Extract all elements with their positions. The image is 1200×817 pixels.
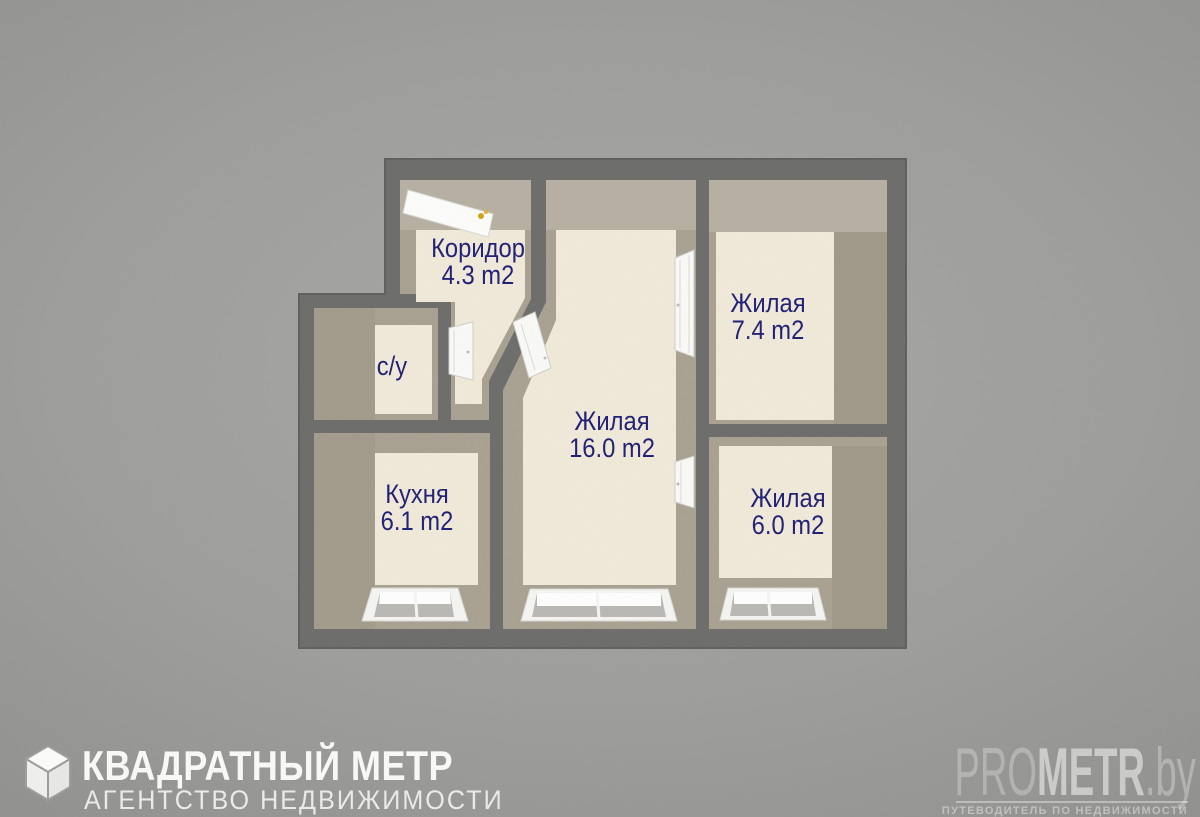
room-name: Жилая [682, 485, 893, 512]
agency-type: АГЕНТСТВО НЕДВИЖИМОСТИ [84, 786, 504, 814]
watermark-tagline: ПУТЕВОДИТЕЛЬ ПО НЕДВИЖИМОСТИ [942, 805, 1188, 817]
entrance-door-handle [478, 213, 484, 219]
room-area: 6.1 m2 [311, 508, 522, 535]
watermark-site-name: PROMETR.by [955, 738, 1196, 806]
watermark-metr: METR [1037, 734, 1145, 810]
watermark-block: PROMETR.by ПУТЕВОДИТЕЛЬ ПО НЕДВИЖИМОСТИ [950, 746, 1198, 817]
watermark-divider [956, 801, 1188, 803]
room-name: с/у [286, 353, 497, 380]
living16-window [521, 589, 677, 621]
room-area: 7.4 m2 [662, 317, 873, 344]
room-label-bathroom: с/у [286, 353, 497, 380]
agency-name: КВАДРАТНЫЙ МЕТР [82, 745, 453, 787]
room-label-corridor: Коридор 4.3 m2 [372, 235, 583, 289]
watermark-domain: .by [1145, 734, 1196, 810]
floorplan-image: Коридор 4.3 m2 Жилая 16.0 m2 Жилая 7.4 m… [0, 0, 1200, 817]
room-walls-living16-top-light [546, 180, 696, 230]
room-walls-living74-top-light [709, 180, 887, 232]
room-name: Коридор [372, 235, 583, 262]
room-label-living-6-0: Жилая 6.0 m2 [682, 485, 893, 539]
room-name: Жилая [662, 290, 873, 317]
room-area: 4.3 m2 [372, 262, 583, 289]
room-label-living-16: Жилая 16.0 m2 [506, 408, 717, 462]
room-area: 16.0 m2 [506, 435, 717, 462]
watermark-pro: PRO [955, 734, 1038, 810]
room-label-living-7-4: Жилая 7.4 m2 [662, 290, 873, 344]
room-label-kitchen: Кухня 6.1 m2 [311, 481, 522, 535]
agency-logo-block: КВАДРАТНЫЙ МЕТР АГЕНТСТВО НЕДВИЖИМОСТИ [0, 744, 560, 817]
living60-window [720, 588, 826, 620]
room-area: 6.0 m2 [682, 512, 893, 539]
room-name: Кухня [311, 481, 522, 508]
kitchen-window [362, 588, 468, 621]
room-name: Жилая [506, 408, 717, 435]
cube-logo-icon [24, 744, 72, 804]
